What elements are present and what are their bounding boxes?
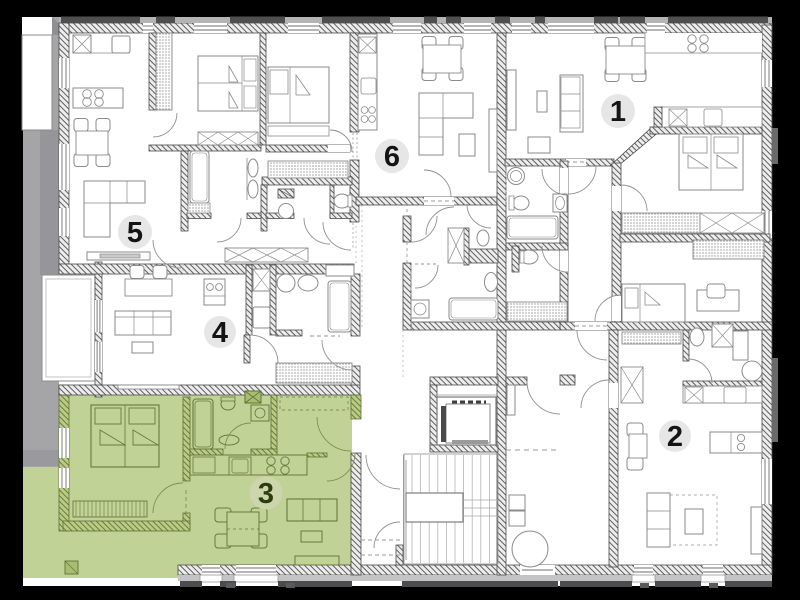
svg-text:3: 3 — [258, 478, 274, 510]
svg-text:2: 2 — [667, 421, 683, 453]
svg-text:5: 5 — [127, 217, 143, 249]
svg-text:6: 6 — [384, 141, 400, 173]
svg-text:1: 1 — [610, 96, 626, 128]
svg-text:4: 4 — [212, 317, 228, 349]
